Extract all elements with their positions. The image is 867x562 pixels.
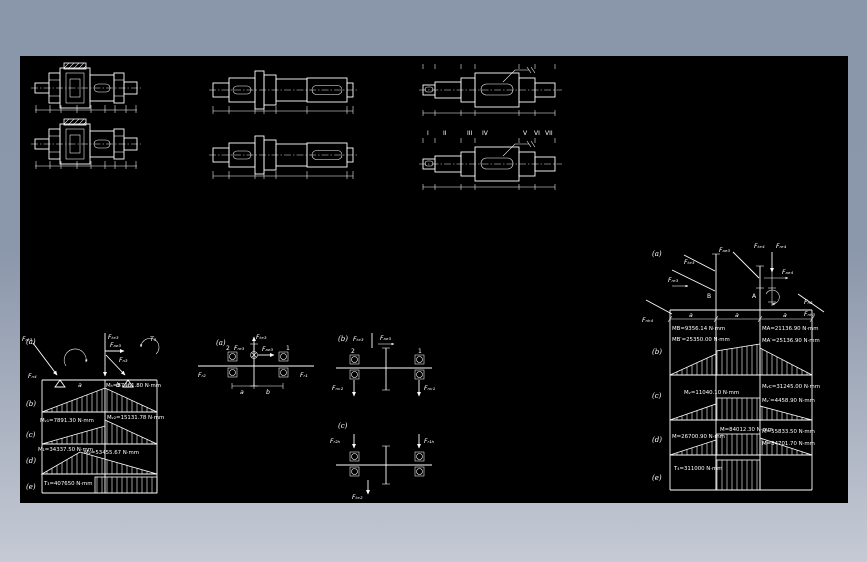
label-reaction-right: Fₙ₃ [119,357,128,364]
label-torque: T₃ [150,336,157,343]
moment-value-c1: Mᵥ₁=7891.30 N·mm [40,418,94,424]
moment-c3: Mᵥ′=4458.90 N·mm [762,398,815,404]
row-letter-a: (a) [652,250,662,258]
right-moment-diagram: (a) (b) (c) (d) (e) [642,243,824,490]
moment-b2: MB′=25350.00 N·mm [672,337,730,343]
force-arrow-radial [33,343,57,375]
moment-d4: M=34701.70 N·mm [762,441,815,447]
moment-c-center [716,398,760,420]
moment-value-d2: M₂=53455.67 N·mm [84,450,139,456]
shaft-views-top-middle [209,71,357,179]
point-b: B [707,293,711,300]
mid-diagram-a: (a) 2 1 Fₜₑ₃ Fₐₑ₃ [198,334,314,396]
moment-value-b: Mₕ=87961.80 N·mm [106,383,161,389]
bearing-number-right: 1 [418,348,422,355]
mid-a-fre: Fᵣₑ₃ [234,345,245,352]
moment-curve-b [42,388,157,412]
left-moment-diagram: (a) (b) (c) (d) (e) [22,333,164,493]
mid-c-force-left: Fᵣ₂ₕ [330,438,341,445]
roman-label: VI [534,130,540,137]
row-letter-c: (c) [652,392,662,400]
moment-b-right [760,348,812,375]
mid-a-fte: Fₜₑ₃ [256,334,267,341]
mid-c-letter: (c) [338,422,348,430]
bearing-symbols [350,355,424,379]
bearing-number-right: 1 [286,345,290,352]
mid-a-dim-a: a [240,389,244,396]
row-letter-e: (e) [652,474,662,482]
row-letter-b: (b) [26,400,36,408]
mid-diagram-c: (c) Fᵣ₂ₕ Fᵣ₁ₕ Fₜₑ₂ [330,422,435,501]
shaft-views-top-right: I II III IV V VI VII [419,64,562,190]
mid-a-reaction-left: Fᵣ₂ [198,372,206,379]
assembly-views-top-left [31,63,141,169]
label-reaction-right2: Fₙₕ₃ [804,311,815,318]
label-fte: Fₜₑ₃ [108,334,119,341]
mid-b-letter: (b) [338,335,348,343]
bearing-number-left: 2 [226,345,230,352]
bearing-number-left: 2 [351,348,355,355]
torque-arc-left [64,349,86,366]
label-reaction-right1: Fₙ₃ [804,299,813,306]
roman-label: II [443,130,447,137]
moment-b-left [670,354,716,375]
moment-c2: Mᵥc=31245.00 N·mm [762,384,820,390]
moment-d-left [670,440,716,455]
roman-label: V [523,130,528,137]
dim-3: a [783,312,787,319]
roman-label: VII [545,130,553,137]
moment-c-left [670,404,716,420]
row-letter-c: (c) [26,431,36,439]
mid-c-force-bottom: Fₜₑ₂ [352,494,363,501]
moment-curve-c2 [105,420,157,444]
section-roman-numerals: I II III IV V VI VII [427,130,553,137]
drawing-layer: I II III IV V VI VII (a) (b) (c) (d) (e) [20,56,848,503]
moment-c-right [760,406,812,420]
moment-value-c2: Mᵥ₂=15131.78 N·mm [107,415,164,421]
bearing-symbols [350,452,424,476]
torque-bar-e [95,477,157,493]
roman-label: I [427,130,429,137]
row-letter-d: (d) [26,457,36,465]
dim-2: a [735,312,739,319]
window-frame: I II III IV V VI VII (a) (b) (c) (d) (e) [0,0,867,562]
label-fre: Fᵣₑ₃ [22,336,33,343]
label-fae: Fₐₑ₃ [110,342,122,349]
torque-value: T₄=311000 N·mm [673,466,723,472]
moment-b1: MB=9356.14 N·mm [672,326,725,332]
row-letter-b: (b) [652,348,662,356]
moment-b-center [716,344,760,375]
moment-b4: MA′=25136.90 N·mm [762,338,820,344]
mid-b-fae: Fₐₑ₃ [380,335,392,342]
label-reaction-left: Fₙₕ₄ [642,317,653,324]
moment-b3: MA=21136.90 N·mm [762,326,819,332]
moment-curve-c1 [42,426,105,444]
roman-label: III [467,130,473,137]
mid-c-force-right: Fᵣ₁ₕ [424,438,435,445]
mid-a-letter: (a) [216,339,226,347]
mid-b-fte: Fₜₑ₃ [353,336,364,343]
dim-1: a [689,312,693,319]
dim-a: a [78,382,82,389]
label-fre3: Fᵣₑ₃ [668,277,679,284]
reaction-arrow-left [646,300,672,314]
label-fte4: Fₜₑ₄ [754,243,765,250]
row-letter-e: (e) [26,483,36,491]
moment-c1: Mᵥ=11040.10 N·mm [684,390,739,396]
mid-b-reaction-right: Fₙᵥ₁ [424,385,436,392]
mid-a-dim-b: b [266,389,270,396]
torque-bar [716,460,760,490]
mid-a-fae: Fₐₑ₃ [262,346,274,353]
point-a: A [752,293,757,300]
mid-a-reaction-right: Fᵣ₁ [300,372,308,379]
moment-d1: M=26700.90 N·mm [672,434,725,440]
row-letter-d: (d) [652,436,662,444]
mid-b-reaction-left: Fₙᵥ₂ [332,385,344,392]
label-reaction-left: Fₙ₄ [28,373,37,380]
cad-canvas[interactable]: I II III IV V VI VII (a) (b) (c) (d) (e) [20,56,848,503]
mid-diagram-b: (b) Fₜₑ₃ Fₐₑ₃ 2 1 Fₙᵥ₂ [332,333,436,396]
roman-label: IV [482,130,489,137]
force-schematic: Fₜₑ₃ Fₐₑ₃ Fᵣₑ₃ Fₜₑ₄ Fᵣₑ₄ Fₐₑ₄ B A [668,243,794,310]
label-fte3: Fₜₑ₃ [684,259,695,266]
label-fre4: Fᵣₑ₄ [776,243,787,250]
support-left [55,380,65,387]
bearing-symbols [228,352,288,377]
torque-value-e: T₃=407650 N·mm [43,481,93,487]
moment-d3: M=55833.50 N·mm [762,429,815,435]
label-fae3: Fₐₑ₃ [719,247,731,254]
label-fae4: Fₐₑ₄ [782,269,794,276]
